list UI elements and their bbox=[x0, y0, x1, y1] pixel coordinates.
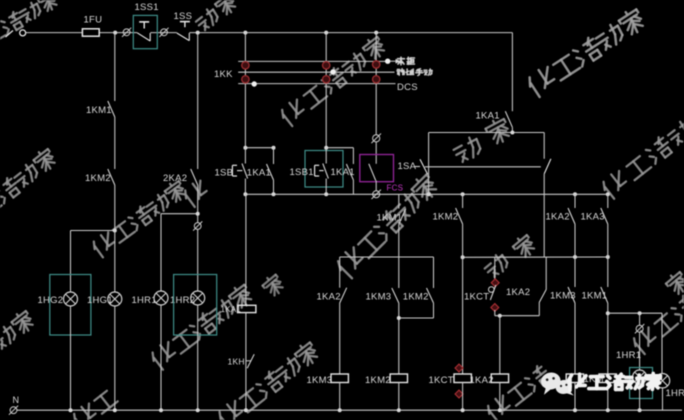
svg-text:1HR: 1HR bbox=[666, 388, 684, 399]
svg-text:1KA1: 1KA1 bbox=[247, 167, 271, 178]
svg-text:FCS: FCS bbox=[387, 184, 404, 193]
svg-text:1KM1: 1KM1 bbox=[86, 105, 112, 116]
svg-text:1KK: 1KK bbox=[214, 69, 233, 80]
svg-text:1KA2: 1KA2 bbox=[470, 375, 494, 386]
svg-text:1SA: 1SA bbox=[398, 161, 417, 172]
svg-text:1KM2: 1KM2 bbox=[85, 173, 111, 184]
svg-text:1KA1: 1KA1 bbox=[476, 111, 500, 122]
svg-text:DCS: DCS bbox=[397, 82, 418, 93]
svg-text:1HG2: 1HG2 bbox=[38, 295, 64, 306]
svg-text:1KM2: 1KM2 bbox=[433, 212, 459, 223]
svg-text:1FU: 1FU bbox=[84, 15, 103, 26]
svg-text:1HG1: 1HG1 bbox=[87, 295, 113, 306]
svg-text:2KA2: 2KA2 bbox=[163, 173, 187, 184]
svg-text:1KA2: 1KA2 bbox=[317, 292, 341, 303]
svg-text:1KH: 1KH bbox=[228, 356, 245, 366]
svg-text:1KM2: 1KM2 bbox=[403, 292, 429, 303]
svg-text:1SS1: 1SS1 bbox=[135, 2, 159, 13]
svg-text:N: N bbox=[13, 395, 20, 405]
svg-text:1KM3: 1KM3 bbox=[366, 292, 392, 303]
svg-text:1KA2: 1KA2 bbox=[546, 212, 570, 223]
svg-text:1KM1: 1KM1 bbox=[377, 213, 403, 224]
svg-text:1KCT: 1KCT bbox=[429, 375, 454, 386]
svg-text:1KA2: 1KA2 bbox=[506, 287, 530, 298]
svg-text:1SS: 1SS bbox=[174, 11, 193, 22]
svg-text:1HR1: 1HR1 bbox=[132, 295, 157, 306]
svg-text:1KM2: 1KM2 bbox=[365, 375, 391, 386]
svg-text:1SB1: 1SB1 bbox=[290, 167, 314, 178]
svg-text:1SB: 1SB bbox=[215, 168, 234, 179]
svg-text:1KA1: 1KA1 bbox=[331, 167, 355, 178]
svg-text:1KM3: 1KM3 bbox=[307, 375, 333, 386]
svg-text:1HR1: 1HR1 bbox=[616, 350, 641, 361]
svg-text:1KCT: 1KCT bbox=[464, 292, 489, 303]
svg-text:1KA3: 1KA3 bbox=[581, 212, 605, 223]
